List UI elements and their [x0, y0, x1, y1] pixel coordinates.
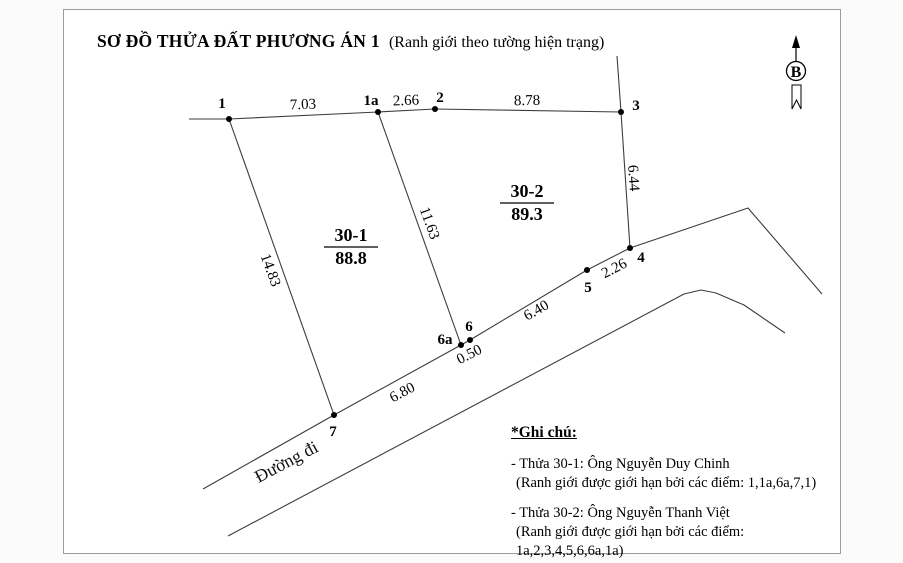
measurement-8.78: 8.78 [514, 93, 541, 109]
measurement-11.63: 11.63 [416, 205, 442, 242]
point-dot-4 [627, 245, 633, 251]
measurement-2.26: 2.26 [599, 256, 630, 282]
edge-west-boundary [229, 119, 334, 415]
measurement-6.44: 6.44 [624, 164, 642, 192]
measurement-14.83: 14.83 [257, 252, 284, 289]
road-label: Đường đi [251, 437, 321, 487]
edge-north-boundary [189, 109, 621, 119]
note-parcel-boundary-points: (Ranh giới được giới hạn bởi các điểm: 1… [511, 474, 851, 493]
point-dot-6a [458, 342, 464, 348]
note-parcel-owner: - Thửa 30-2: Ông Nguyễn Thanh Việt [511, 504, 851, 523]
edge-east-boundary [617, 56, 630, 248]
page: SƠ ĐỒ THỬA ĐẤT PHƯƠNG ÁN 1(Ranh giới the… [0, 0, 903, 563]
edge-middle-divider [378, 112, 461, 345]
point-label-2: 2 [436, 90, 444, 106]
parcel-id-30-2: 30-2 [511, 181, 544, 201]
note-item: - Thửa 30-1: Ông Nguyễn Duy Chinh(Ranh g… [511, 455, 851, 493]
notes-items: - Thửa 30-1: Ông Nguyễn Duy Chinh(Ranh g… [511, 455, 851, 561]
point-dot-7 [331, 412, 337, 418]
point-label-3: 3 [632, 98, 640, 114]
measurement-2.66: 2.66 [393, 93, 420, 110]
note-item: - Thửa 30-2: Ông Nguyễn Thanh Việt(Ranh … [511, 504, 851, 561]
point-dot-5 [584, 267, 590, 273]
point-dot-3 [618, 109, 624, 115]
point-label-6: 6 [465, 319, 473, 335]
point-label-4: 4 [637, 250, 645, 266]
notes-heading: *Ghi chú: [511, 424, 851, 442]
compass-arrowhead-icon [792, 35, 800, 48]
point-label-6a: 6a [438, 332, 454, 348]
point-dot-1 [226, 116, 232, 122]
parcel-id-30-1: 30-1 [335, 225, 368, 245]
notes-section: *Ghi chú: - Thửa 30-1: Ông Nguyễn Duy Ch… [511, 424, 851, 563]
measurement-7.03: 7.03 [290, 97, 317, 114]
point-dot-6 [467, 337, 473, 343]
parcel-area-30-1: 88.8 [335, 248, 367, 268]
note-parcel-owner: - Thửa 30-1: Ông Nguyễn Duy Chinh [511, 455, 851, 474]
note-parcel-boundary-points: (Ranh giới được giới hạn bởi các điểm: 1… [511, 523, 851, 561]
point-label-1: 1 [218, 96, 226, 112]
point-dot-1a [375, 109, 381, 115]
parcel-area-30-2: 89.3 [511, 204, 543, 224]
measurement-6.40: 6.40 [521, 297, 552, 324]
point-dot-2 [432, 106, 438, 112]
point-label-7: 7 [329, 424, 337, 440]
compass-fletching-icon [792, 85, 801, 109]
compass-north-label: B [791, 64, 802, 81]
point-label-5: 5 [584, 280, 592, 296]
point-label-1a: 1a [364, 93, 380, 109]
